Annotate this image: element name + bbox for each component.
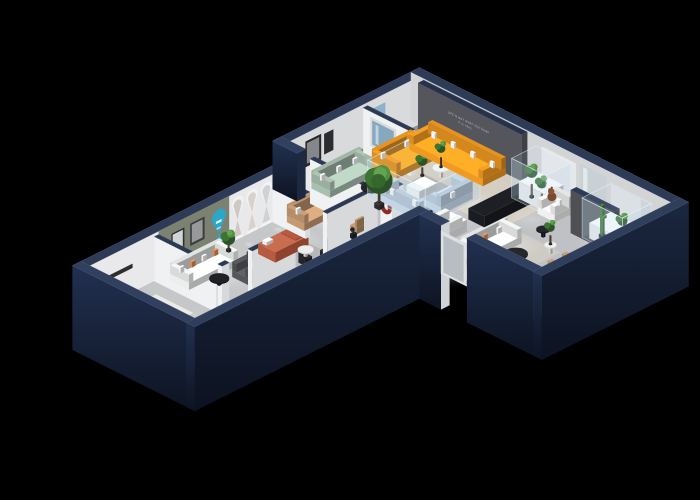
floorplan-svg: LIFE IS NOT WHAT YOU THINKIT IS HERE [0,0,700,500]
showroom-3d-render: LIFE IS NOT WHAT YOU THINKIT IS HERE [0,0,700,500]
